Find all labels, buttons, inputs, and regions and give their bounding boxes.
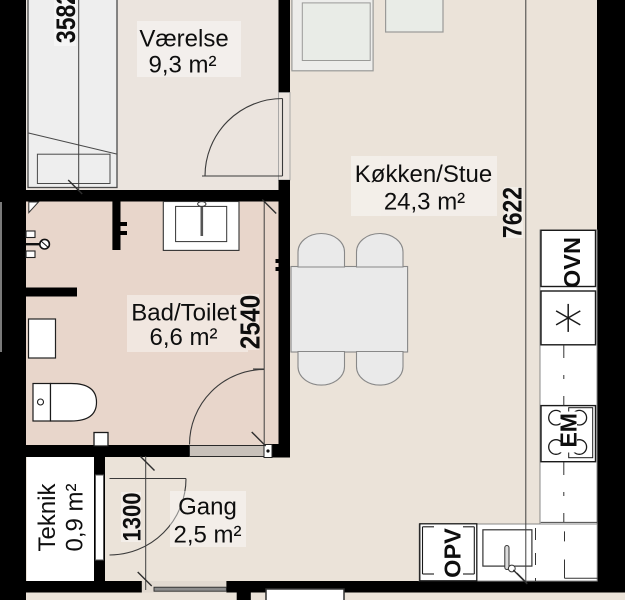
- svg-text:2,5 m²: 2,5 m²: [173, 522, 241, 549]
- svg-text:Gang: Gang: [178, 494, 237, 521]
- svg-text:OVN: OVN: [559, 237, 585, 288]
- svg-text:3582: 3582: [53, 0, 82, 43]
- svg-text:Bad/Toilet: Bad/Toilet: [131, 300, 237, 327]
- svg-text:EM: EM: [555, 413, 581, 448]
- svg-text:9,3 m²: 9,3 m²: [148, 52, 216, 79]
- svg-text:6,6 m²: 6,6 m²: [149, 324, 217, 351]
- svg-text:Værelse: Værelse: [139, 26, 228, 53]
- svg-text:Køkken/Stue: Køkken/Stue: [355, 161, 492, 188]
- svg-text:1300: 1300: [119, 493, 147, 542]
- svg-text:24,3 m²: 24,3 m²: [384, 189, 465, 216]
- svg-text:7622: 7622: [499, 187, 528, 238]
- svg-text:0,9 m²: 0,9 m²: [62, 483, 89, 551]
- svg-text:Teknik: Teknik: [34, 482, 61, 551]
- svg-text:2540: 2540: [234, 295, 266, 349]
- svg-text:OPV: OPV: [440, 528, 466, 578]
